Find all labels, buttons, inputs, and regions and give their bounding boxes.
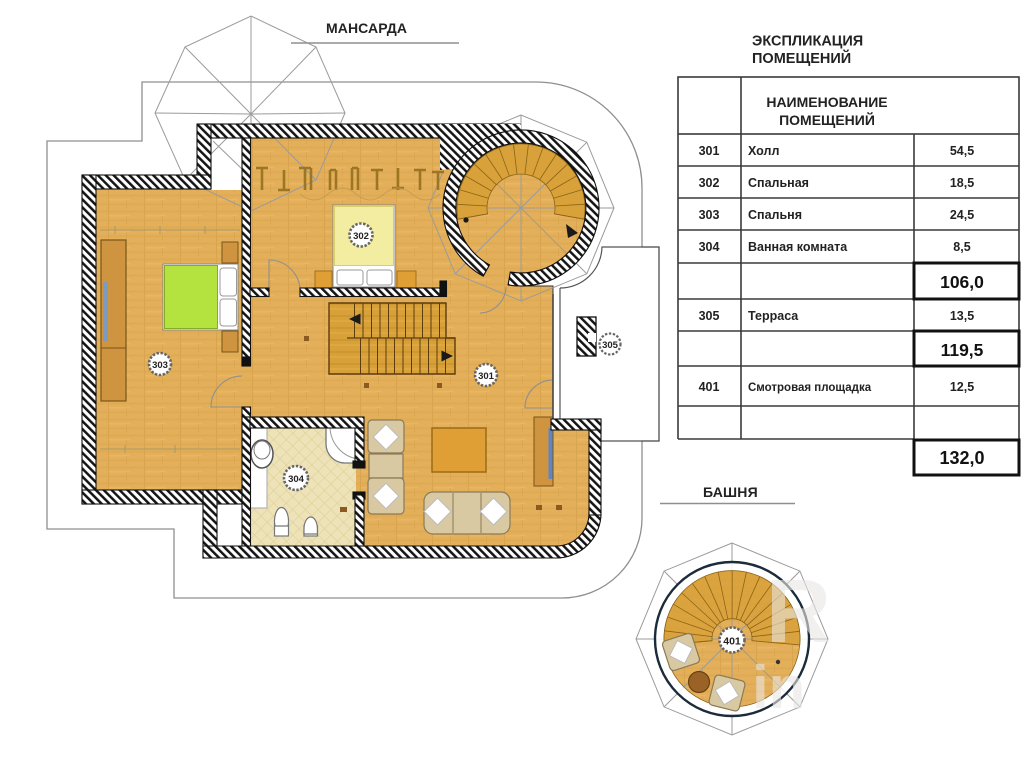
svg-text:ПОМЕЩЕНИЙ: ПОМЕЩЕНИЙ bbox=[752, 49, 851, 67]
svg-text:24,5: 24,5 bbox=[950, 208, 974, 222]
svg-text:Спальня: Спальня bbox=[748, 208, 802, 222]
svg-text:Смотровая площадка: Смотровая площадка bbox=[748, 382, 872, 394]
svg-text:Терраса: Терраса bbox=[748, 309, 799, 323]
svg-text:301: 301 bbox=[478, 371, 495, 382]
svg-text:ЭКСПЛИКАЦИЯ: ЭКСПЛИКАЦИЯ bbox=[752, 34, 863, 50]
svg-text:304: 304 bbox=[699, 240, 720, 254]
svg-text:119,5: 119,5 bbox=[941, 340, 984, 360]
svg-text:304: 304 bbox=[288, 474, 305, 485]
svg-text:305: 305 bbox=[699, 309, 720, 323]
svg-text:НАИМЕНОВАНИЕ: НАИМЕНОВАНИЕ bbox=[766, 94, 887, 110]
svg-text:Холл: Холл bbox=[748, 144, 779, 158]
svg-text:БАШНЯ: БАШНЯ bbox=[703, 484, 758, 500]
svg-text:ПОМЕЩЕНИЙ: ПОМЕЩЕНИЙ bbox=[779, 111, 875, 128]
svg-text:Ванная комната: Ванная комната bbox=[748, 240, 848, 254]
svg-text:401: 401 bbox=[699, 380, 720, 394]
svg-text:Спальная: Спальная bbox=[748, 176, 809, 190]
svg-text:R: R bbox=[766, 562, 831, 662]
svg-text:18,5: 18,5 bbox=[950, 176, 974, 190]
svg-text:МАНСАРДА: МАНСАРДА bbox=[326, 20, 407, 36]
svg-text:303: 303 bbox=[152, 360, 168, 371]
svg-text:54,5: 54,5 bbox=[950, 144, 974, 158]
svg-text:401: 401 bbox=[723, 636, 741, 648]
svg-text:8,5: 8,5 bbox=[953, 240, 970, 254]
svg-text:301: 301 bbox=[699, 144, 720, 158]
svg-text:132,0: 132,0 bbox=[939, 448, 984, 468]
svg-text:13,5: 13,5 bbox=[950, 309, 974, 323]
svg-text:302: 302 bbox=[353, 231, 369, 242]
svg-text:303: 303 bbox=[699, 208, 720, 222]
svg-text:302: 302 bbox=[699, 176, 720, 190]
svg-text:106,0: 106,0 bbox=[940, 272, 984, 292]
svg-text:12,5: 12,5 bbox=[950, 380, 974, 394]
svg-text:305: 305 bbox=[602, 340, 619, 351]
